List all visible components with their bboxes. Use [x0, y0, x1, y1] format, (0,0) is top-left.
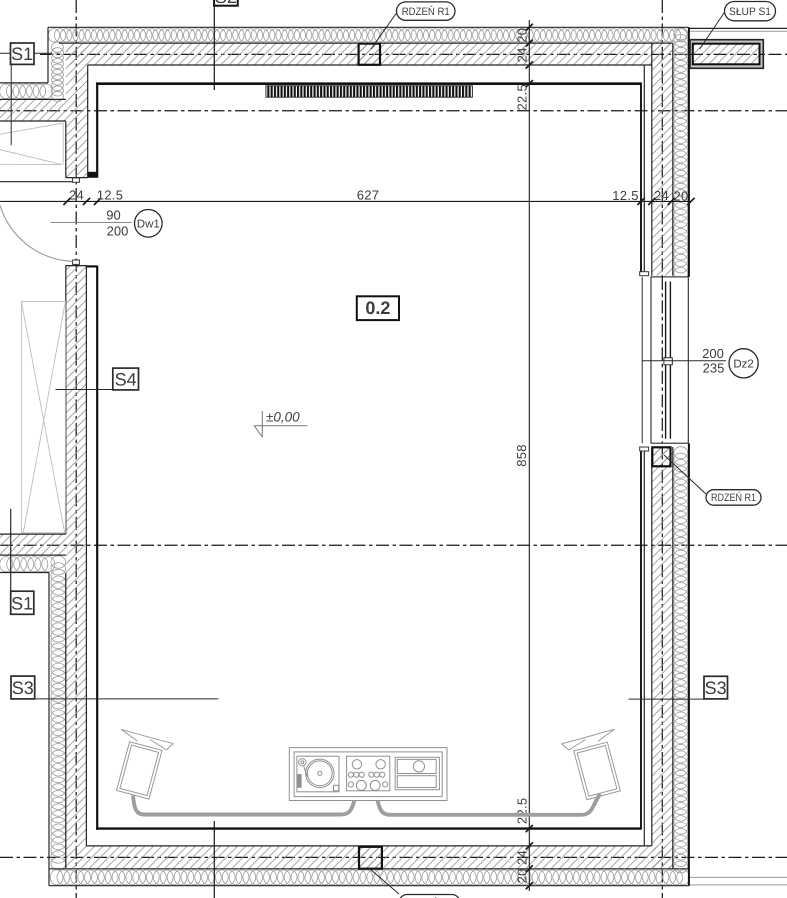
svg-text:20: 20	[515, 28, 530, 43]
svg-text:±0,00: ±0,00	[266, 410, 300, 425]
svg-text:S2: S2	[215, 0, 237, 7]
svg-text:S3: S3	[705, 678, 727, 698]
svg-text:200: 200	[107, 224, 129, 239]
svg-text:24: 24	[654, 188, 669, 203]
svg-text:858: 858	[514, 444, 529, 467]
svg-text:235: 235	[703, 361, 725, 376]
svg-text:627: 627	[357, 188, 380, 203]
svg-text:22.5: 22.5	[514, 84, 529, 111]
svg-text:S1: S1	[11, 44, 33, 64]
svg-text:24: 24	[515, 850, 530, 865]
svg-text:S1: S1	[11, 593, 33, 613]
svg-text:24: 24	[515, 47, 530, 62]
svg-text:SŁUP S1: SŁUP S1	[729, 6, 771, 18]
svg-text:RDZEŃ R1: RDZEŃ R1	[711, 491, 756, 504]
svg-text:0.2: 0.2	[365, 298, 390, 318]
svg-text:12.5: 12.5	[97, 188, 124, 203]
svg-text:12.5: 12.5	[612, 188, 639, 203]
svg-text:20: 20	[673, 189, 688, 204]
svg-text:90: 90	[106, 208, 120, 223]
svg-text:Dw1: Dw1	[137, 218, 160, 230]
svg-text:S3: S3	[12, 678, 34, 698]
svg-text:S4: S4	[115, 370, 137, 390]
svg-text:22.5: 22.5	[515, 798, 530, 825]
svg-text:Dz2: Dz2	[733, 358, 753, 370]
svg-text:200: 200	[702, 346, 724, 361]
svg-text:RDZEŃ R1: RDZEŃ R1	[402, 5, 450, 18]
svg-text:24: 24	[69, 188, 84, 203]
svg-text:20: 20	[515, 868, 530, 883]
